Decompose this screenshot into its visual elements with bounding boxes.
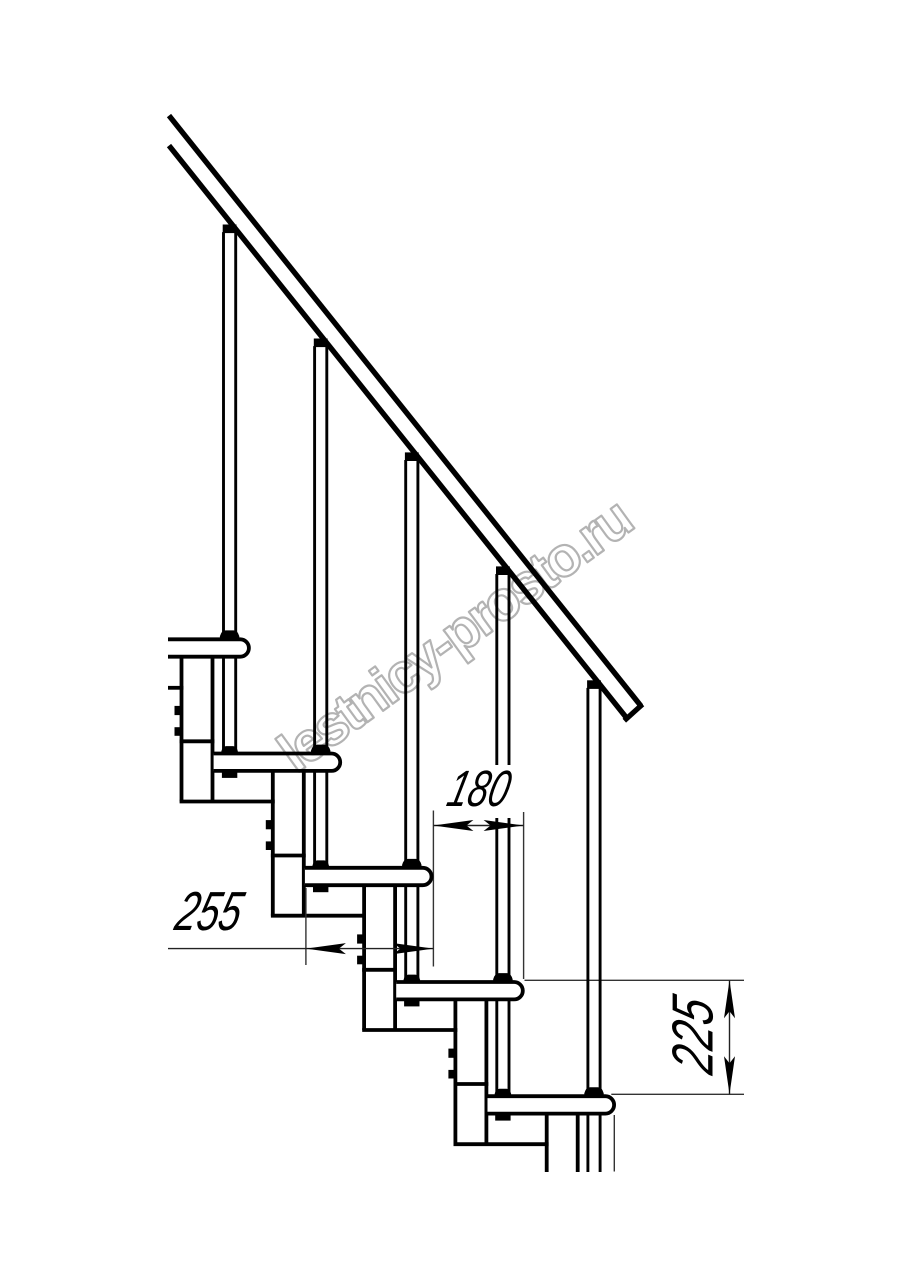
svg-text:225: 225	[662, 990, 726, 1081]
svg-text:255: 255	[169, 881, 250, 942]
